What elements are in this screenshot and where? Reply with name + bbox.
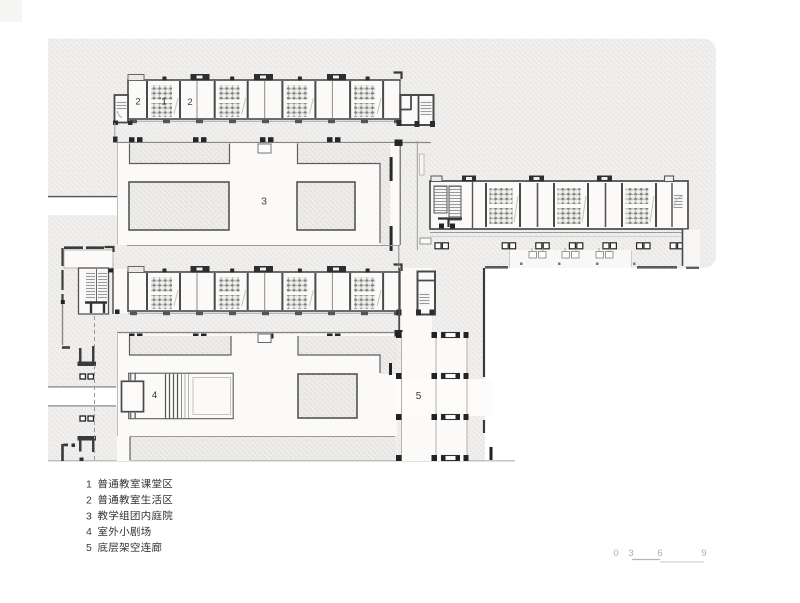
svg-text:4: 4 — [86, 526, 92, 538]
svg-text:4: 4 — [152, 390, 157, 401]
svg-text:2: 2 — [135, 97, 140, 108]
svg-text:3: 3 — [86, 510, 92, 522]
svg-text:1: 1 — [161, 97, 166, 108]
svg-text:0: 0 — [613, 548, 618, 559]
svg-text:5: 5 — [416, 391, 422, 402]
svg-text:5: 5 — [86, 542, 92, 554]
svg-text:9: 9 — [701, 548, 706, 559]
svg-text:6: 6 — [657, 548, 662, 559]
svg-text:3: 3 — [628, 548, 633, 559]
svg-text:1: 1 — [86, 479, 92, 491]
svg-text:2: 2 — [187, 97, 192, 108]
svg-text:3: 3 — [261, 196, 267, 208]
svg-text:2: 2 — [86, 494, 92, 506]
